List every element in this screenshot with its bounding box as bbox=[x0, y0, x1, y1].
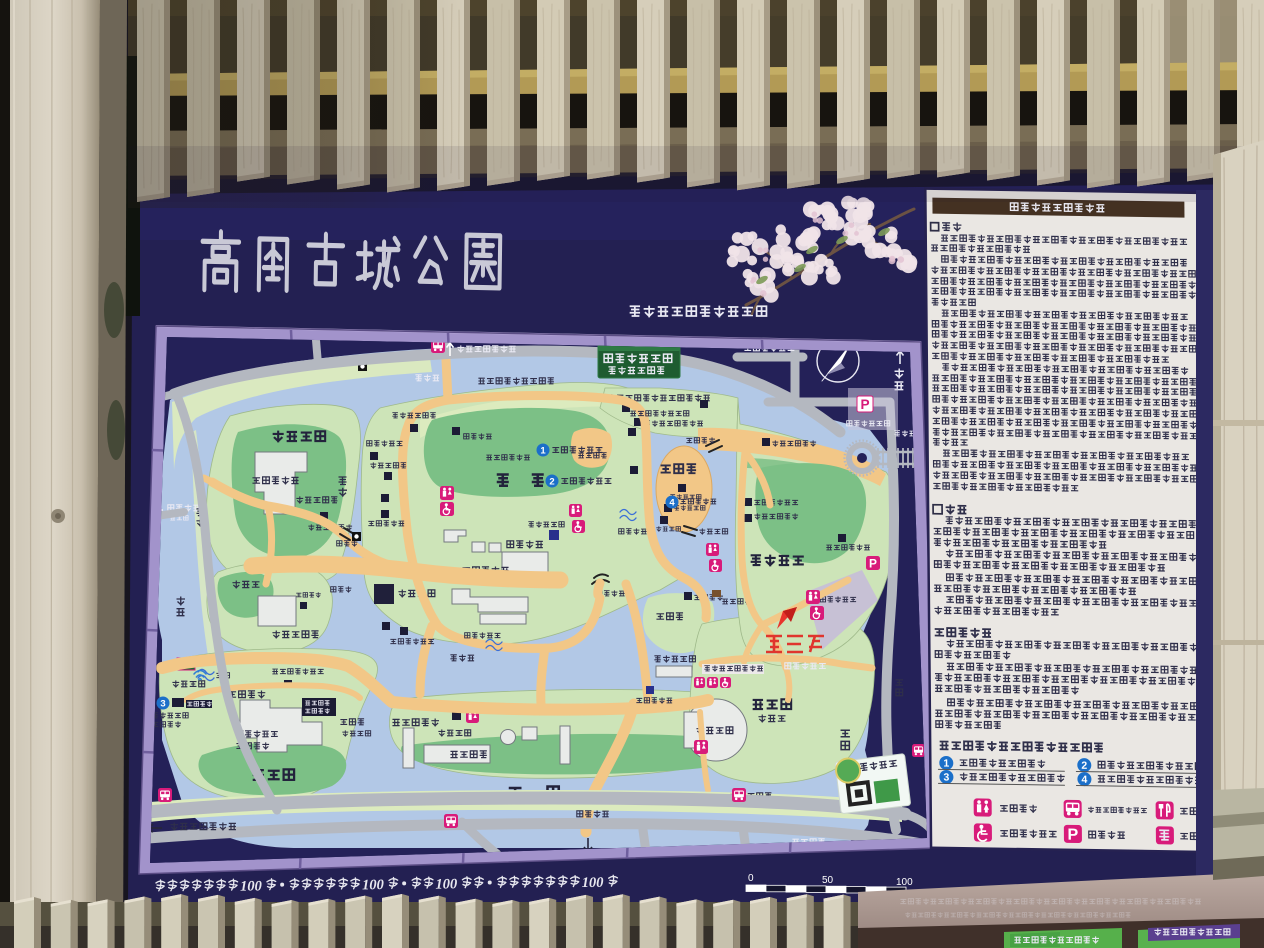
svg-text:P: P bbox=[1067, 826, 1078, 844]
svg-text:100: 100 bbox=[240, 878, 262, 894]
svg-text:2: 2 bbox=[549, 477, 554, 488]
svg-text:50: 50 bbox=[822, 875, 834, 886]
svg-text:100: 100 bbox=[896, 877, 913, 888]
svg-text:4: 4 bbox=[669, 498, 675, 509]
svg-text:3: 3 bbox=[160, 699, 165, 710]
svg-text:100: 100 bbox=[582, 875, 604, 891]
svg-text:2: 2 bbox=[1081, 760, 1087, 772]
svg-text:1: 1 bbox=[943, 758, 949, 770]
svg-text:3: 3 bbox=[943, 772, 949, 784]
svg-text:100: 100 bbox=[435, 876, 457, 892]
svg-text:P: P bbox=[869, 556, 877, 570]
svg-text:P: P bbox=[860, 397, 869, 412]
svg-text:1: 1 bbox=[540, 446, 546, 457]
svg-text:0: 0 bbox=[748, 873, 754, 884]
svg-text:4: 4 bbox=[1081, 774, 1087, 786]
svg-text:100: 100 bbox=[362, 877, 384, 893]
